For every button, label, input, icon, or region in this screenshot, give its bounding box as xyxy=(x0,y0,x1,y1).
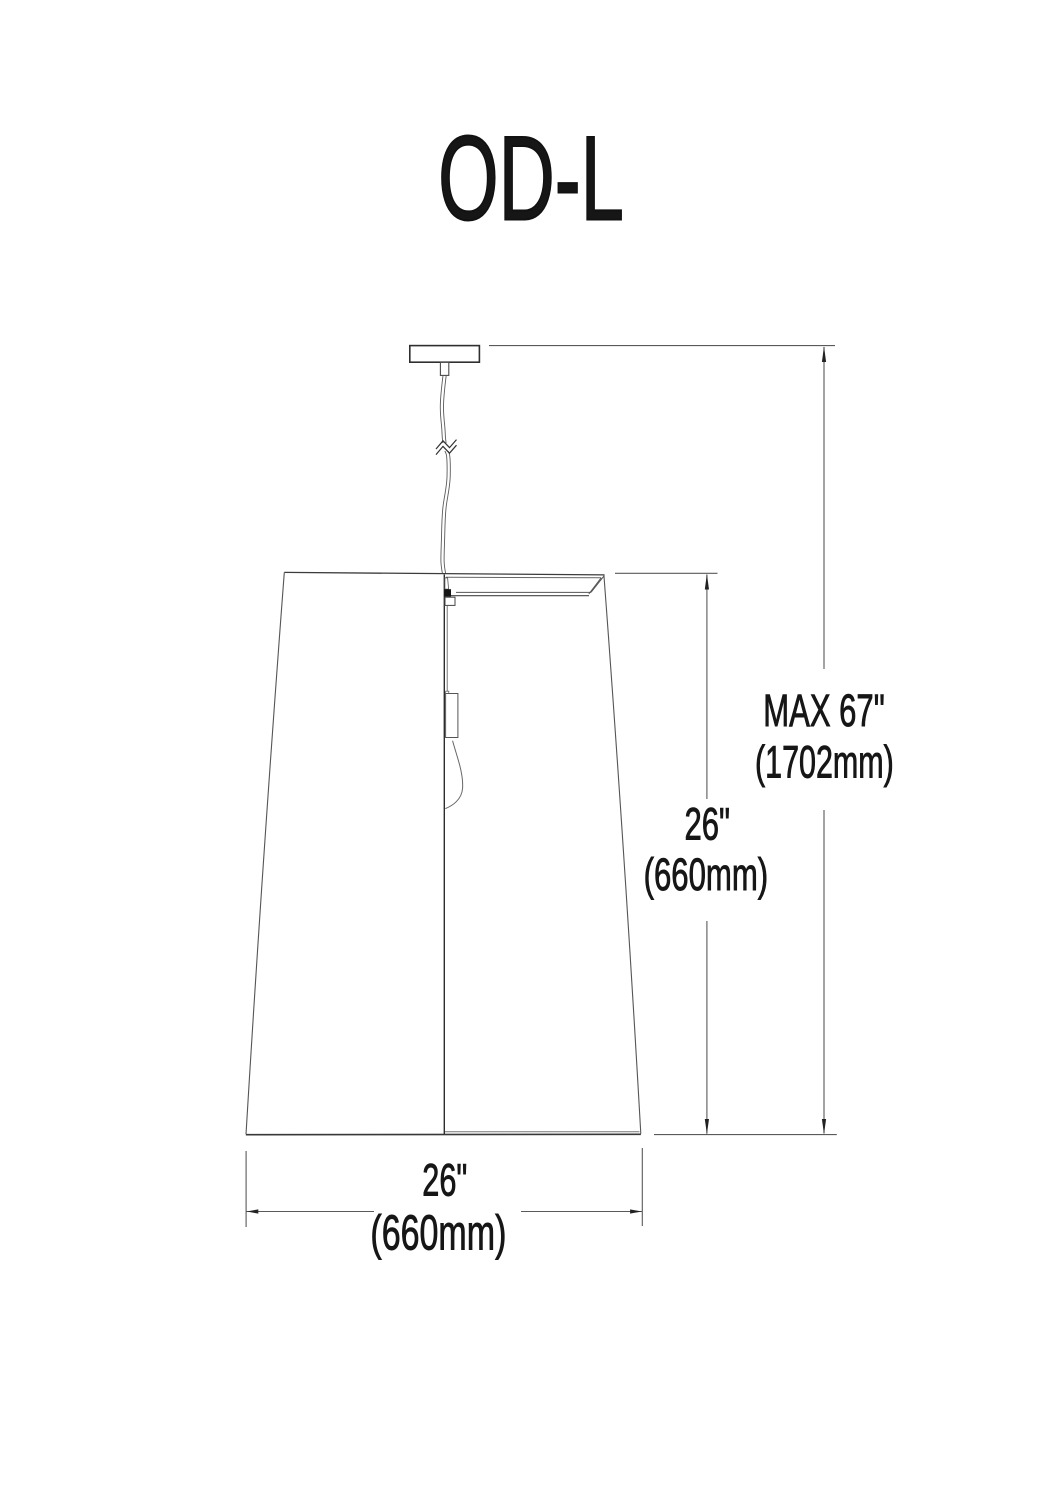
svg-text:26": 26" xyxy=(685,800,731,850)
svg-text:MAX 67": MAX 67" xyxy=(763,686,884,736)
svg-text:(1702mm): (1702mm) xyxy=(755,738,894,788)
svg-text:OD-L: OD-L xyxy=(438,112,624,246)
svg-text:(660mm): (660mm) xyxy=(370,1205,506,1260)
svg-text:(660mm): (660mm) xyxy=(644,850,769,900)
svg-text:26": 26" xyxy=(422,1156,467,1206)
